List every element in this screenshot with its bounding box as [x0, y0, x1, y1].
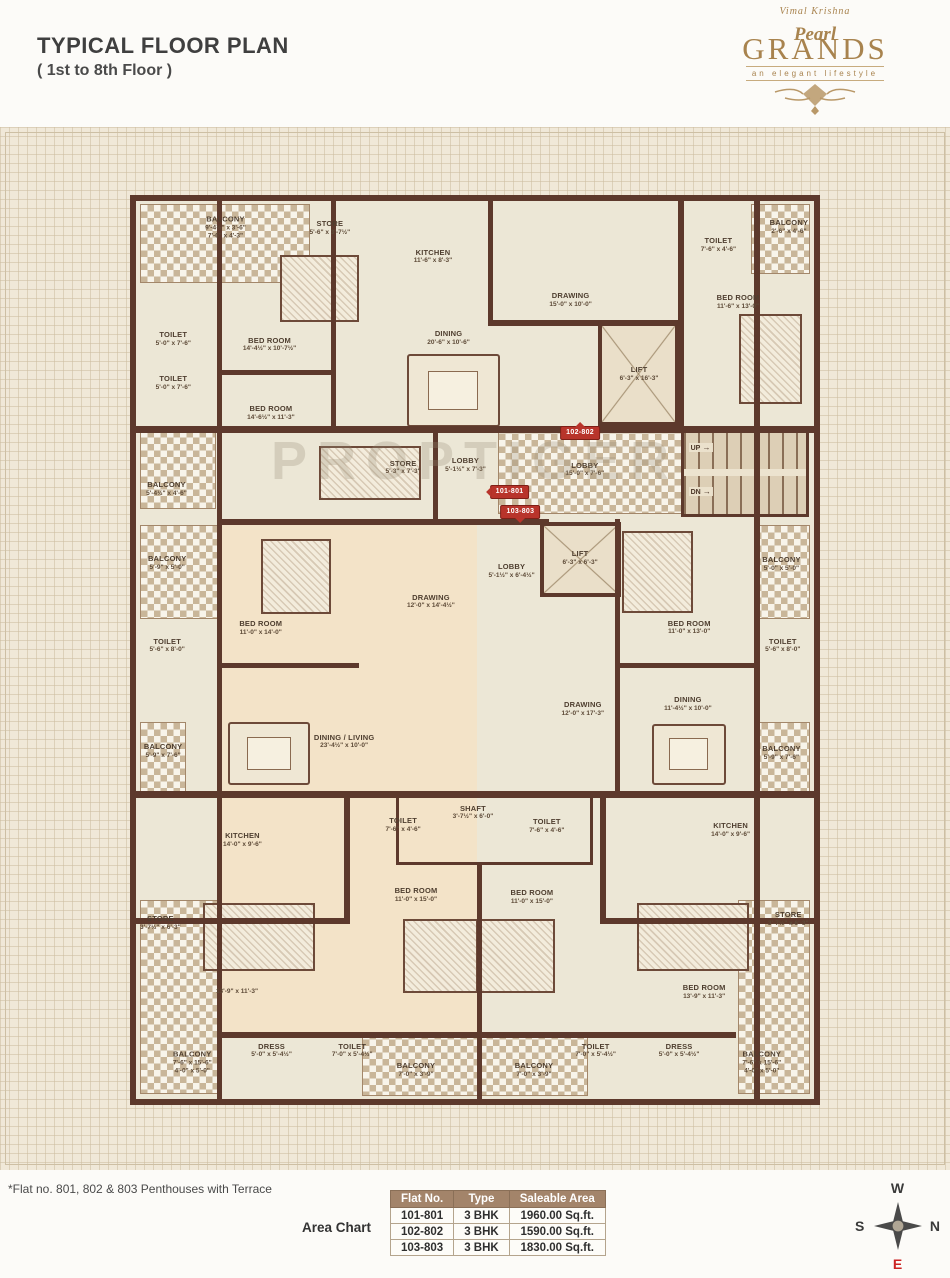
room-label: STORE3'-7½" x 6'-3"	[140, 914, 181, 932]
room-label: BALCONY5'-9" x 7'-6"	[762, 744, 800, 762]
room-label: BED ROOM13'-9" x 11'-3"	[683, 983, 726, 1001]
room-label: BED ROOM14'-4½" x 10'-7½"	[243, 336, 296, 354]
room-label: STORE5'-6" x 3'-7½"	[310, 219, 351, 237]
room-label: LIFT6'-3" x 16'-3"	[620, 365, 659, 383]
staircase	[681, 428, 809, 517]
room-label: LIFT6'-3" x 6'-3"	[562, 549, 597, 567]
bed	[403, 919, 478, 993]
bed	[280, 255, 359, 322]
table-cell: 1960.00 Sq.ft.	[509, 1208, 605, 1224]
table-header-cell: Flat No.	[391, 1191, 454, 1208]
room-label: DRAWING12'-0" x 14'-4½"	[407, 592, 455, 610]
room-label: BALCONY7'-6" x 15'-6"4'-0" x 5'-0"	[742, 1050, 781, 1077]
dining-table	[228, 722, 311, 785]
room-label: KITCHEN11'-6" x 8'-3"	[414, 248, 453, 266]
room-label: 13'-9" x 11'-3"	[216, 988, 258, 996]
room-label: DRESS5'-0" x 5'-4½"	[251, 1041, 292, 1059]
table-cell: 3 BHK	[454, 1240, 510, 1256]
table-header-cell: Type	[454, 1191, 510, 1208]
wall	[615, 663, 755, 668]
wall	[217, 370, 331, 375]
room-label: SHAFT3'-7½" x 6'-0"	[453, 803, 494, 821]
brand-script-name: Pearl	[794, 24, 836, 46]
balcony-tiles	[752, 205, 809, 273]
room-label: BED ROOM11'-0" x 15'-0"	[511, 888, 554, 906]
room-label: TOILET5'-0" x 7'-6"	[156, 374, 191, 392]
room-label: BALCONY5'-9" x 7'-6"	[144, 742, 182, 760]
wall	[217, 519, 549, 525]
table-cell: 3 BHK	[454, 1208, 510, 1224]
dining-table	[652, 724, 726, 785]
room-label: TOILET7'-6" x 4'-6"	[385, 816, 420, 834]
table-cell: 3 BHK	[454, 1224, 510, 1240]
room-label: BALCONY5'-9" x 5'-0"	[148, 554, 186, 572]
room-label: BALCONY7'-0" x 3'-9"	[397, 1061, 435, 1079]
room-label: BED ROOM11'-0" x 14'-0"	[239, 619, 282, 637]
room-label: BED ROOM11'-6" x 13'-0"	[717, 293, 760, 311]
stairs-up-label: UP	[689, 443, 713, 452]
room-label: TOILET5'-0" x 7'-6"	[156, 330, 191, 348]
brand-tagline: an elegant lifestyle	[746, 66, 884, 81]
flat-number-tag: 101-801	[490, 485, 530, 499]
table-row: 102-8023 BHK1590.00 Sq.ft.	[391, 1224, 606, 1240]
dining-table	[407, 354, 501, 428]
wall	[136, 426, 814, 432]
wall	[678, 201, 683, 426]
room-label: KITCHEN14'-0" x 9'-6"	[223, 831, 262, 849]
room-label: DRESS5'-0" x 5'-4½"	[659, 1041, 700, 1059]
brand-pre-title: Vimal Krishna	[710, 6, 920, 17]
table-cell: 101-801	[391, 1208, 454, 1224]
wall	[488, 320, 684, 326]
wall	[615, 519, 620, 791]
bed	[622, 531, 693, 613]
room-label: BED ROOM11'-0" x 13'-0"	[668, 618, 711, 636]
area-chart-table: Flat No.TypeSaleable Area 101-8013 BHK19…	[390, 1190, 606, 1256]
table-row: 103-8033 BHK1830.00 Sq.ft.	[391, 1240, 606, 1256]
wall	[754, 201, 759, 1099]
room-label: BED ROOM11'-0" x 15'-0"	[395, 886, 438, 904]
room-label: STORE5'-3" x 7'-3"	[385, 459, 420, 477]
bed	[261, 539, 331, 614]
brand-logo: Vimal Krishna Pearl GRANDS an elegant li…	[710, 6, 920, 121]
page-title: TYPICAL FLOOR PLAN	[37, 33, 289, 59]
room-label: BED ROOM14'-6½" x 11'-3"	[247, 404, 295, 422]
wall	[217, 201, 222, 1099]
wall	[433, 426, 438, 518]
compass-east: E	[893, 1256, 902, 1272]
room-label: DINING / LIVING23'-4½" x 10'-0"	[314, 733, 375, 751]
compass-north: N	[930, 1218, 940, 1234]
flat-number-tag: 102-802	[560, 426, 600, 440]
room-label: BALCONY7'-0" x 3'-9"	[515, 1061, 553, 1079]
flat-number-tag: 103-803	[501, 505, 541, 519]
compass-star-icon	[874, 1202, 922, 1250]
room-label: BALCONY9'-4½" x 3'-6"7'-6" x 4'-3"	[205, 215, 246, 242]
room-label: TOILET7'-0" x 5'-4½"	[575, 1041, 616, 1059]
room-label: LOBBY15'-0" x 7'-6"	[565, 460, 604, 478]
room-label: TOILET7'-6" x 4'-6"	[529, 817, 564, 835]
table-header-cell: Saleable Area	[509, 1191, 605, 1208]
area-chart-label: Area Chart	[302, 1220, 371, 1235]
room-label: TOILET7'-0" x 5'-4½"	[332, 1041, 373, 1059]
room-label: TOILET5'-6" x 8'-0"	[150, 636, 185, 654]
compass-rose: W N S E	[855, 1180, 940, 1272]
room-label: DRAWING15'-0" x 10'-0"	[549, 291, 592, 309]
table-cell: 1830.00 Sq.ft.	[509, 1240, 605, 1256]
table-cell: 102-802	[391, 1224, 454, 1240]
room-label: DINING20'-6" x 10'-6"	[427, 329, 470, 347]
bed	[637, 903, 749, 970]
room-label: DINING11'-4½" x 10'-0"	[664, 695, 712, 713]
page-subtitle: ( 1st to 8th Floor )	[37, 62, 172, 80]
stairs-down-label: DN	[689, 487, 713, 496]
room-label: KITCHEN14'-0" x 9'-6"	[711, 821, 750, 839]
room-label: TOILET7'-6" x 4'-6"	[701, 236, 736, 254]
room-label: DRAWING12'-0" x 17'-3"	[562, 700, 605, 718]
wall	[217, 1032, 736, 1038]
room-label: BALCONY7'-6" x 15'-6"4'-0" x 5'-0"	[173, 1050, 212, 1077]
table-cell: 103-803	[391, 1240, 454, 1256]
page: TYPICAL FLOOR PLAN ( 1st to 8th Floor ) …	[0, 0, 950, 1278]
wall	[477, 865, 482, 1099]
penthouse-note: *Flat no. 801, 802 & 803 Penthouses with…	[8, 1182, 272, 1196]
room-label: LOBBY5'-1½" x 6'-4½"	[489, 562, 535, 580]
footer: *Flat no. 801, 802 & 803 Penthouses with…	[0, 1170, 950, 1278]
wall	[488, 201, 493, 320]
table-row: 101-8013 BHK1960.00 Sq.ft.	[391, 1208, 606, 1224]
bed	[480, 919, 555, 993]
room-label: STORE3'-7½" x 6'-3"	[768, 910, 809, 928]
wall	[344, 791, 349, 918]
compass-west: W	[891, 1180, 904, 1196]
header: TYPICAL FLOOR PLAN ( 1st to 8th Floor ) …	[0, 0, 950, 127]
wall	[217, 663, 359, 668]
plan-board: UP DN PROPTIGER BALCONY9'-4½" x 3'-6"7'-…	[0, 127, 950, 1170]
room-label: BALCONY5'-4½" x 4'-6"	[146, 480, 187, 498]
compass-south: S	[855, 1218, 864, 1234]
room-label: LOBBY5'-1½" x 7'-3"	[445, 456, 486, 474]
room-label: BALCONY2'-6" x 4'-6"	[770, 218, 808, 236]
table-cell: 1590.00 Sq.ft.	[509, 1224, 605, 1240]
room-label: TOILET5'-6" x 8'-0"	[765, 636, 800, 654]
wall	[600, 791, 605, 918]
room-label: BALCONY5'-0" x 5'-0"	[762, 555, 800, 573]
ornament-icon	[710, 82, 920, 121]
floor-plan: UP DN PROPTIGER BALCONY9'-4½" x 3'-6"7'-…	[130, 195, 820, 1105]
bed	[739, 314, 802, 404]
